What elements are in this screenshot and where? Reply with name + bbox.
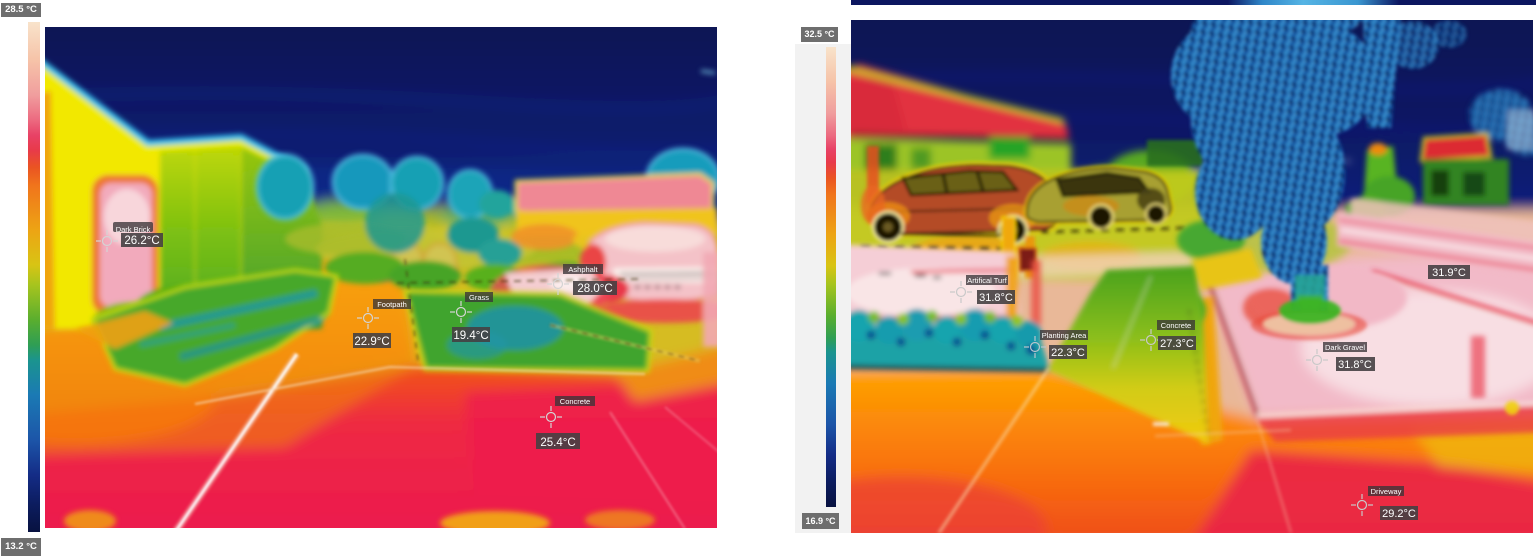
svg-text:Dark Gravel: Dark Gravel (1325, 343, 1365, 352)
svg-text:31.9°C: 31.9°C (1432, 267, 1466, 279)
svg-text:31.8°C: 31.8°C (1338, 359, 1372, 371)
svg-text:31.8°C: 31.8°C (979, 292, 1013, 304)
svg-text:26.2°C: 26.2°C (124, 235, 159, 247)
svg-text:Footpath: Footpath (377, 300, 407, 309)
svg-text:Grass: Grass (469, 293, 489, 302)
svg-text:Artifical Turf: Artifical Turf (967, 276, 1008, 285)
svg-text:29.2°C: 29.2°C (1382, 508, 1416, 520)
svg-text:Concrete: Concrete (1161, 321, 1191, 330)
svg-text:22.9°C: 22.9°C (354, 336, 389, 348)
svg-text:22.3°C: 22.3°C (1051, 347, 1085, 359)
svg-text:Planting Area: Planting Area (1042, 331, 1087, 340)
svg-text:27.3°C: 27.3°C (1160, 338, 1194, 350)
svg-text:28.0°C: 28.0°C (577, 283, 612, 295)
svg-text:19.4°C: 19.4°C (453, 330, 488, 342)
svg-text:Dark Brick: Dark Brick (116, 225, 151, 234)
svg-text:Driveway: Driveway (1371, 487, 1402, 496)
svg-text:25.4°C: 25.4°C (540, 437, 575, 449)
svg-text:Concrete: Concrete (560, 397, 590, 406)
svg-text:Ashphalt: Ashphalt (568, 265, 598, 274)
